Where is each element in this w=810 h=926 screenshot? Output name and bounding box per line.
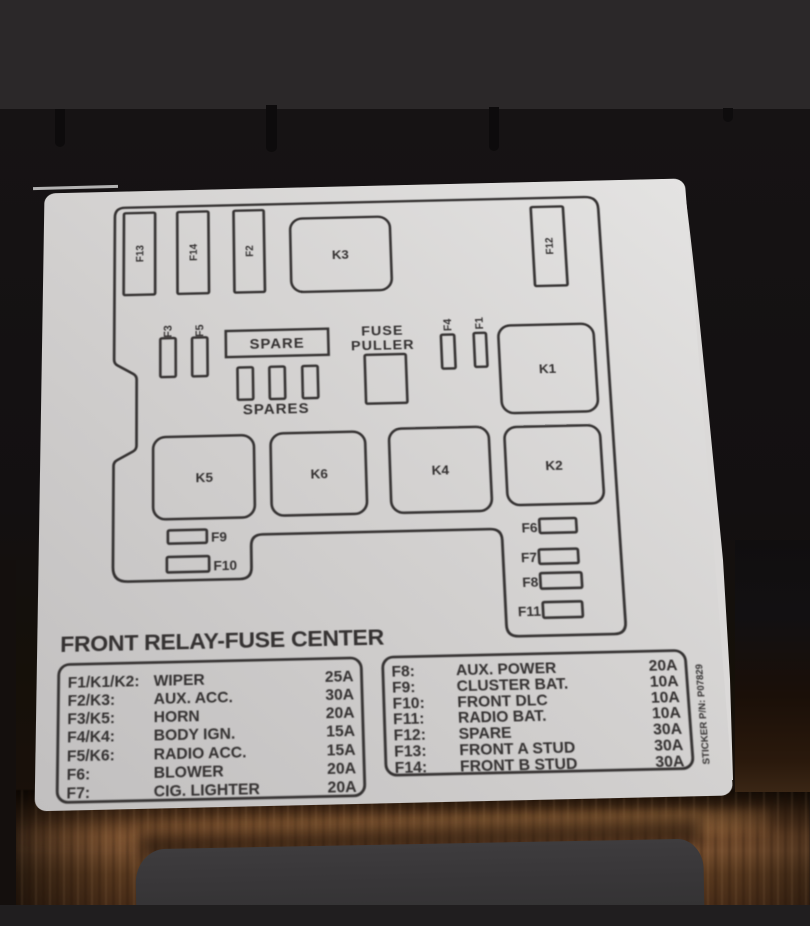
svg-text:F13: F13 [135,245,147,263]
svg-text:F1/K1/K2:WIPER: F1/K1/K2:WIPER [68,671,205,691]
svg-text:PULLER: PULLER [351,337,415,354]
svg-text:F9: F9 [211,529,227,544]
svg-text:SPARES: SPARES [243,400,310,417]
svg-text:20A: 20A [326,704,355,722]
svg-text:25A: 25A [325,668,354,685]
svg-text:SPARE: SPARE [249,335,304,352]
svg-text:15A: 15A [326,723,355,741]
svg-text:F4: F4 [442,318,454,331]
svg-text:30A: 30A [653,720,683,738]
svg-text:F12: F12 [544,237,557,255]
svg-text:F1: F1 [474,317,486,330]
svg-text:K6: K6 [310,467,328,482]
svg-text:F3: F3 [163,325,175,338]
svg-text:F7: F7 [521,550,538,566]
svg-text:10A: 10A [651,704,681,722]
svg-text:F5: F5 [195,324,207,337]
svg-text:10A: 10A [650,688,680,706]
svg-text:F6: F6 [521,520,538,535]
svg-text:F8: F8 [522,575,539,591]
svg-text:F10: F10 [213,558,237,574]
svg-text:K4: K4 [431,463,449,478]
svg-text:F14: F14 [188,243,200,261]
svg-text:30A: 30A [654,736,684,754]
svg-text:F2: F2 [244,245,256,257]
svg-text:K5: K5 [196,470,214,485]
svg-text:K3: K3 [332,248,349,262]
svg-text:10A: 10A [649,673,679,690]
svg-text:K2: K2 [545,458,563,473]
svg-text:20A: 20A [648,657,678,674]
svg-text:F11: F11 [517,604,541,620]
svg-text:20A: 20A [327,760,356,778]
svg-text:30A: 30A [655,752,685,770]
svg-text:15A: 15A [326,741,355,759]
svg-text:30A: 30A [325,686,354,703]
svg-text:K1: K1 [538,362,556,377]
svg-text:20A: 20A [327,778,356,796]
